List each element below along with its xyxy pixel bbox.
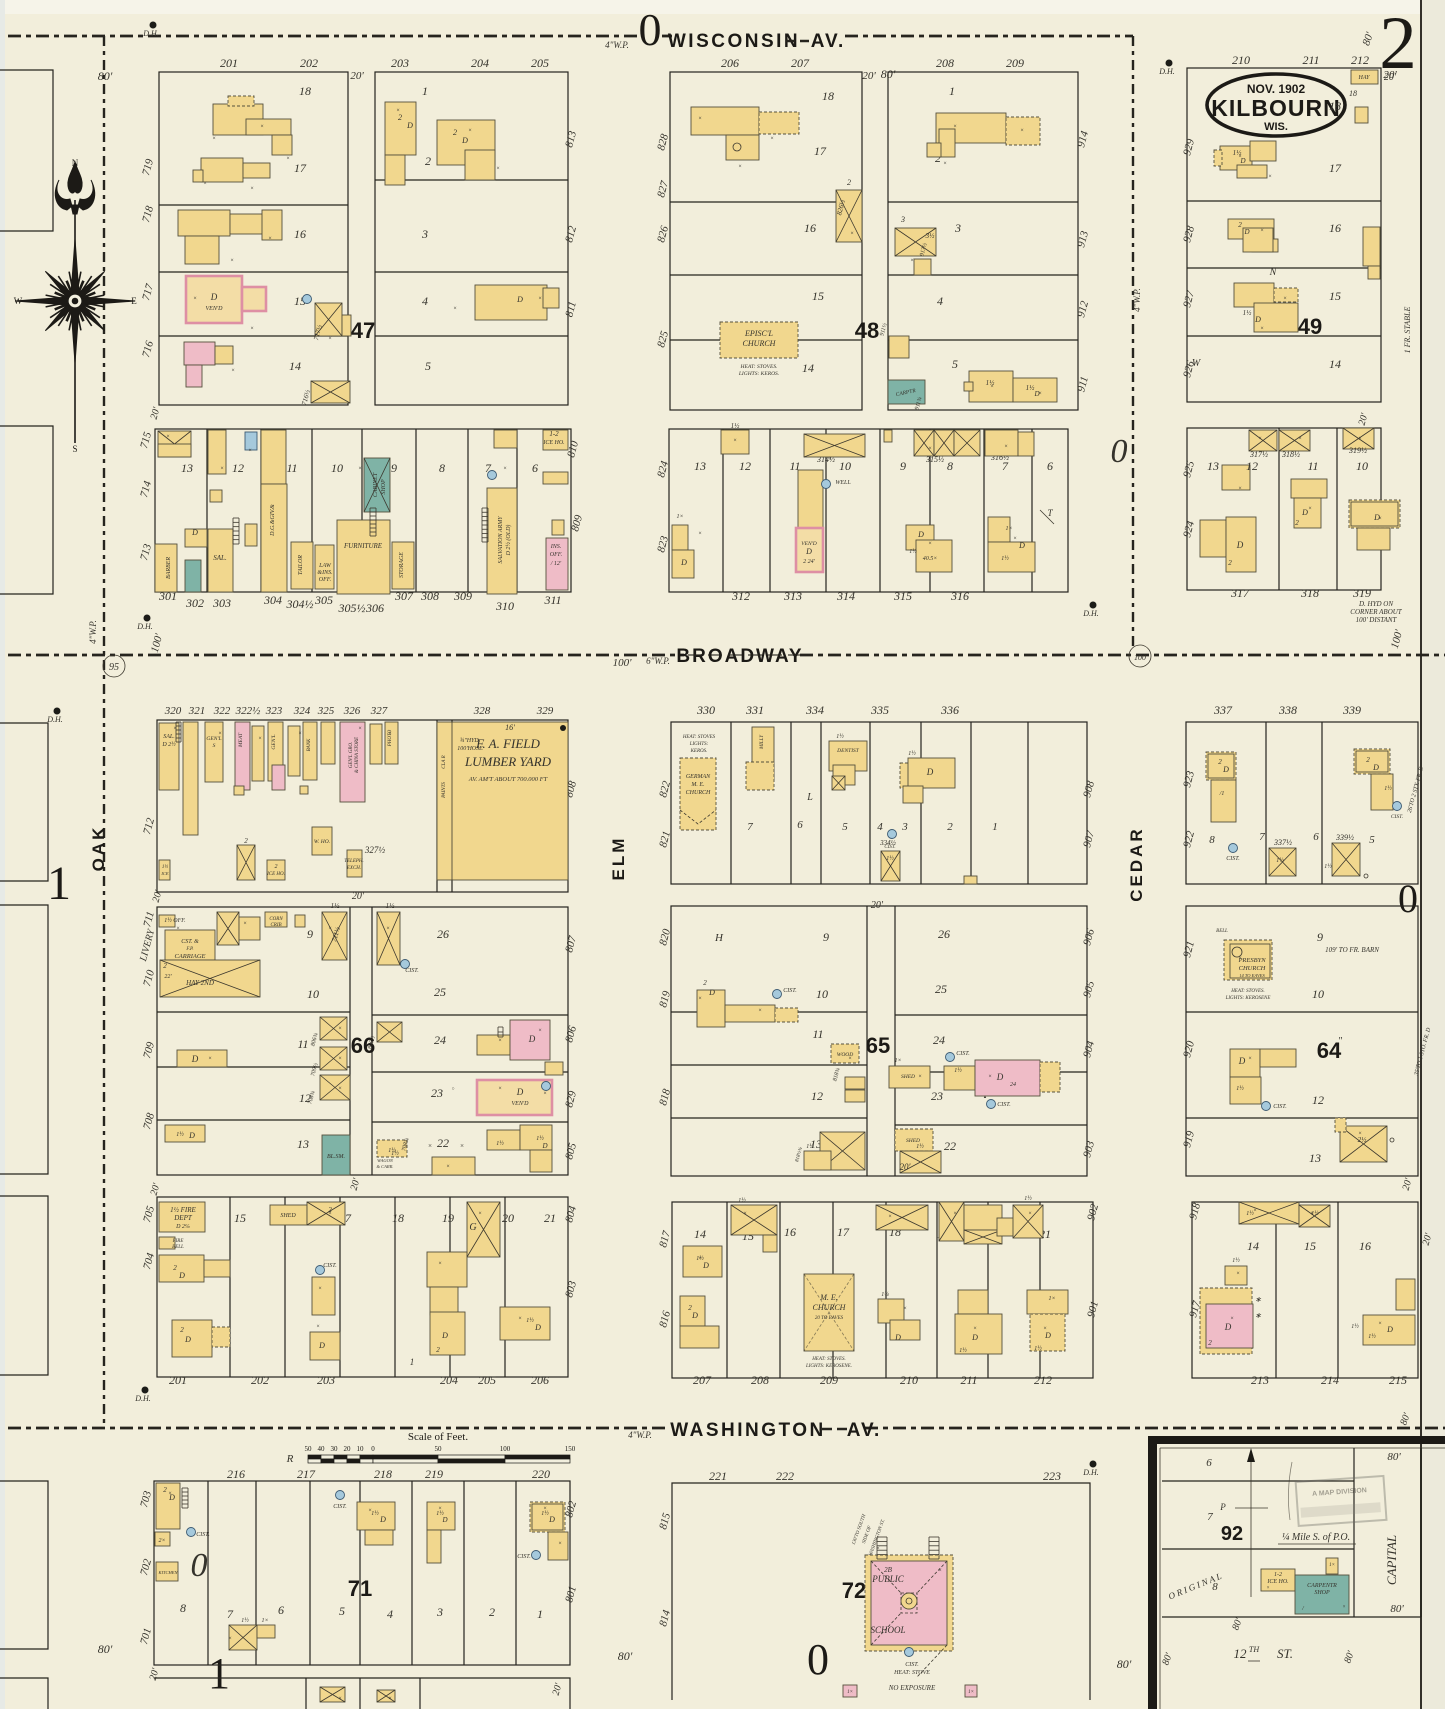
svg-text:D. HYD ON: D. HYD ON	[1358, 600, 1393, 608]
svg-text:23: 23	[431, 1086, 443, 1100]
svg-text:324: 324	[293, 705, 311, 717]
svg-text:CARPENTR: CARPENTR	[1307, 1583, 1337, 1589]
svg-text:×: ×	[212, 136, 216, 142]
svg-text:D: D	[1044, 1331, 1051, 1340]
svg-text:22': 22'	[164, 974, 172, 980]
svg-text:2×: 2×	[158, 1538, 165, 1544]
svg-text:10: 10	[331, 461, 343, 475]
svg-text:5: 5	[425, 359, 431, 373]
svg-text:LIGHTS: KEROS.: LIGHTS: KEROS.	[738, 371, 779, 377]
svg-text:BELL: BELL	[172, 1245, 184, 1250]
svg-text:D: D	[191, 528, 198, 537]
svg-text:18: 18	[392, 1211, 404, 1225]
svg-text:D: D	[184, 1335, 191, 1344]
svg-text:D: D	[441, 1516, 447, 1524]
svg-text:18: 18	[822, 89, 834, 103]
svg-text:17: 17	[814, 144, 827, 158]
svg-text:2: 2	[1218, 758, 1222, 766]
svg-text:DENTIST: DENTIST	[836, 748, 860, 754]
svg-text:16: 16	[294, 227, 306, 241]
svg-text:49: 49	[1298, 314, 1322, 339]
svg-text:D.H.: D.H.	[46, 715, 63, 724]
svg-text:20': 20'	[862, 70, 876, 82]
svg-text:×: ×	[203, 181, 207, 187]
svg-text:D.H.: D.H.	[142, 29, 159, 38]
svg-text:100': 100'	[613, 657, 633, 669]
svg-text:20': 20'	[350, 70, 364, 82]
svg-text:22: 22	[944, 1139, 956, 1153]
svg-text:0: 0	[1111, 433, 1128, 470]
svg-text:×: ×	[388, 731, 392, 737]
svg-text:11: 11	[286, 461, 297, 475]
svg-text:D: D	[534, 1323, 541, 1332]
svg-text:326: 326	[343, 705, 361, 717]
svg-text:14: 14	[289, 359, 301, 373]
svg-text:×: ×	[498, 1086, 502, 1092]
svg-text:1½: 1½	[836, 733, 844, 740]
svg-text:109' TO FR. BARN: 109' TO FR. BARN	[1325, 946, 1379, 954]
svg-text:10: 10	[357, 1445, 365, 1453]
svg-text:323: 323	[265, 705, 283, 717]
svg-text:0: 0	[191, 1547, 208, 1584]
svg-text:CIST.: CIST.	[905, 1662, 918, 1668]
svg-text:26: 26	[437, 927, 449, 941]
svg-text:10: 10	[307, 987, 319, 1001]
svg-text:×: ×	[358, 726, 362, 732]
svg-text:208: 208	[751, 1373, 769, 1387]
svg-text:10: 10	[816, 987, 828, 1001]
svg-text:×: ×	[1378, 1321, 1382, 1327]
svg-text:SAL.: SAL.	[163, 734, 175, 740]
svg-text:2: 2	[173, 1264, 177, 1272]
svg-text:1½: 1½	[241, 1617, 249, 1624]
svg-text:10: 10	[1356, 459, 1368, 473]
svg-text:1×: 1×	[676, 514, 683, 520]
svg-text:×: ×	[738, 164, 742, 170]
svg-text:3: 3	[421, 227, 428, 241]
svg-text:20': 20'	[900, 1162, 912, 1172]
svg-text:1½: 1½	[1024, 1195, 1032, 1202]
svg-text:/1: /1	[1219, 791, 1225, 797]
svg-text:1: 1	[47, 857, 71, 910]
svg-text:D: D	[188, 1131, 195, 1140]
svg-text:317½: 317½	[1249, 450, 1268, 459]
svg-text:9: 9	[1317, 930, 1323, 944]
svg-text:2: 2	[1295, 519, 1299, 527]
svg-text:5: 5	[952, 357, 958, 371]
svg-text:D: D	[1238, 1056, 1246, 1066]
svg-text:×: ×	[538, 1028, 542, 1034]
svg-text:223: 223	[1043, 1469, 1061, 1483]
svg-text:LIGHTS:: LIGHTS:	[689, 742, 709, 747]
svg-text:×: ×	[498, 1038, 502, 1044]
svg-text:×: ×	[1310, 1211, 1314, 1217]
svg-text:1½: 1½	[916, 1143, 924, 1150]
svg-text:GERMAN: GERMAN	[686, 774, 711, 780]
svg-text:9: 9	[307, 927, 313, 941]
svg-text:1½: 1½	[1001, 555, 1009, 562]
svg-text:D: D	[548, 1515, 555, 1524]
svg-text:×: ×	[396, 108, 400, 114]
svg-text:11: 11	[297, 1037, 308, 1051]
svg-text:TAILOR: TAILOR	[298, 555, 304, 575]
svg-text:1½: 1½	[162, 865, 169, 870]
svg-text:204: 204	[471, 56, 489, 70]
svg-text:×: ×	[990, 384, 994, 390]
svg-text:×: ×	[698, 531, 702, 537]
svg-text:D 2½: D 2½	[161, 741, 176, 748]
svg-text:H: H	[714, 932, 724, 944]
svg-text:11: 11	[812, 1027, 823, 1041]
svg-text:4: 4	[387, 1607, 393, 1621]
svg-text:×: ×	[250, 326, 254, 332]
svg-text:1×: 1×	[1048, 1296, 1055, 1302]
svg-text:305½: 305½	[338, 601, 366, 615]
svg-text:40: 40	[318, 1445, 326, 1453]
svg-text:313: 313	[783, 589, 802, 603]
svg-text:×: ×	[953, 124, 957, 130]
svg-text:5: 5	[1369, 834, 1375, 846]
svg-text:71: 71	[348, 1576, 372, 1601]
svg-text:328: 328	[473, 705, 491, 717]
svg-text:1½: 1½	[1351, 1323, 1359, 1330]
svg-text:16: 16	[1359, 1239, 1371, 1253]
svg-text:WASHINGTON: WASHINGTON	[670, 1420, 826, 1441]
svg-text:303: 303	[212, 596, 231, 610]
svg-text:CORN: CORN	[269, 917, 283, 922]
svg-text:214: 214	[1321, 1373, 1339, 1387]
svg-text:3: 3	[901, 821, 908, 833]
svg-text:335: 335	[870, 703, 889, 717]
svg-text:150: 150	[565, 1445, 576, 1453]
svg-text:×: ×	[318, 1286, 322, 1292]
svg-text:1×: 1×	[847, 1690, 853, 1695]
svg-text:×: ×	[173, 726, 177, 732]
svg-text:×: ×	[1236, 1271, 1240, 1277]
svg-text:315: 315	[893, 589, 912, 603]
svg-text:WELL: WELL	[835, 480, 851, 486]
svg-text:W: W	[14, 296, 23, 306]
svg-text:×: ×	[1342, 1605, 1345, 1610]
svg-text:×: ×	[1260, 228, 1264, 234]
svg-text:CIST.: CIST.	[783, 988, 796, 994]
svg-text:1×: 1×	[1005, 526, 1012, 532]
svg-text:1½: 1½	[1384, 785, 1392, 792]
svg-text:LIGHTS: KEROSENE.: LIGHTS: KEROSENE.	[805, 1364, 852, 1369]
svg-text:2: 2	[436, 1346, 440, 1354]
svg-text:D: D	[1222, 765, 1229, 774]
svg-text:FIRE: FIRE	[172, 1239, 184, 1244]
svg-text:×: ×	[220, 466, 224, 472]
svg-text:D.H.: D.H.	[1082, 609, 1099, 618]
svg-text:210: 210	[900, 1373, 918, 1387]
svg-text:×: ×	[928, 541, 932, 547]
svg-text:2: 2	[1366, 756, 1370, 764]
svg-text:13: 13	[297, 1137, 309, 1151]
svg-text:D.H.: D.H.	[134, 1394, 151, 1403]
svg-text:×: ×	[338, 1086, 342, 1092]
svg-text:7: 7	[747, 821, 753, 833]
svg-text:24: 24	[1010, 1081, 1016, 1088]
svg-text:1½: 1½	[954, 1067, 962, 1074]
svg-text:TELEPH.: TELEPH.	[344, 859, 364, 864]
svg-text:×: ×	[316, 1324, 320, 1330]
svg-text:1 FR. STABLE: 1 FR. STABLE	[1403, 307, 1412, 354]
svg-text:100' DISTANT: 100' DISTANT	[1356, 616, 1398, 624]
svg-text:310: 310	[495, 599, 514, 613]
svg-text:1×: 1×	[261, 1618, 268, 1624]
svg-text:1½: 1½	[331, 902, 341, 910]
svg-text:CIST.: CIST.	[1391, 814, 1403, 820]
svg-text:D: D	[1254, 315, 1261, 324]
svg-text:D: D	[1236, 540, 1244, 550]
svg-text:CABINET: CABINET	[373, 472, 379, 497]
svg-text:8: 8	[180, 1601, 186, 1615]
svg-text:D: D	[1018, 541, 1025, 550]
svg-text:10: 10	[839, 459, 851, 473]
svg-text:304: 304	[263, 593, 282, 607]
svg-text:1½: 1½	[908, 750, 916, 757]
svg-text:×: ×	[943, 161, 947, 167]
svg-text:95: 95	[109, 662, 119, 673]
svg-text:CIST.: CIST.	[333, 1504, 346, 1510]
svg-text:325: 325	[317, 705, 335, 717]
svg-text:20': 20'	[1384, 72, 1397, 83]
svg-text:17: 17	[837, 1225, 850, 1239]
svg-text:100'HOSE: 100'HOSE	[457, 746, 483, 752]
svg-text:WAGON: WAGON	[377, 1158, 394, 1163]
svg-text:F. A. FIELD: F. A. FIELD	[475, 736, 540, 751]
svg-text:219: 219	[425, 1467, 443, 1481]
svg-text:×: ×	[850, 231, 854, 237]
svg-text:×: ×	[208, 1056, 212, 1062]
svg-text:×: ×	[928, 446, 932, 452]
svg-text:14: 14	[802, 361, 814, 375]
svg-text:S: S	[72, 444, 77, 454]
svg-text:25: 25	[434, 985, 446, 999]
svg-text:SHED: SHED	[901, 1074, 915, 1080]
svg-text:×: ×	[1283, 296, 1287, 302]
svg-text:×: ×	[438, 1506, 442, 1512]
svg-text:2B: 2B	[884, 1566, 893, 1574]
svg-text:9: 9	[823, 930, 829, 944]
svg-text:17: 17	[294, 161, 307, 175]
svg-text:SHED: SHED	[280, 1213, 296, 1219]
svg-text:18: 18	[299, 84, 311, 98]
svg-text:×: ×	[538, 296, 542, 302]
svg-text:TH: TH	[1249, 1645, 1260, 1654]
svg-text:LAW: LAW	[318, 563, 332, 569]
svg-text:HEAT: STOVES.: HEAT: STOVES.	[1230, 989, 1265, 994]
svg-text:×: ×	[1238, 154, 1242, 160]
svg-text:L: L	[806, 792, 813, 803]
svg-text:ICE HO.: ICE HO.	[266, 872, 285, 877]
svg-text:1½: 1½	[1276, 857, 1284, 864]
svg-text:305: 305	[314, 593, 333, 607]
svg-text:EPISC'L: EPISC'L	[744, 329, 773, 338]
svg-text:14: 14	[1329, 357, 1341, 371]
svg-text:×: ×	[938, 1568, 942, 1574]
svg-text:322: 322	[213, 705, 231, 717]
svg-text:∗: ∗	[1255, 1311, 1262, 1320]
svg-text:1½: 1½	[1236, 1085, 1244, 1092]
svg-text:KEROS.: KEROS.	[690, 749, 708, 754]
svg-text:22: 22	[437, 1136, 449, 1150]
svg-text:×: ×	[1038, 391, 1042, 397]
svg-text:D: D	[1372, 763, 1379, 772]
svg-text:×: ×	[1358, 436, 1362, 442]
svg-text:334: 334	[805, 703, 824, 717]
svg-text:319½: 319½	[1348, 446, 1367, 455]
svg-text:PUBLIC: PUBLIC	[871, 1574, 904, 1584]
svg-text:×: ×	[338, 1696, 342, 1702]
svg-text:4: 4	[937, 294, 943, 308]
svg-text:6: 6	[1047, 459, 1053, 473]
svg-text:CIST.: CIST.	[405, 968, 418, 974]
svg-text:R: R	[286, 1453, 294, 1465]
svg-text:×: ×	[1298, 436, 1302, 442]
svg-text:334½: 334½	[879, 839, 897, 847]
svg-text:213: 213	[1251, 1373, 1269, 1387]
svg-text:11: 11	[1307, 459, 1318, 473]
svg-text:1½: 1½	[1034, 1345, 1042, 1352]
svg-text:0: 0	[371, 1445, 375, 1453]
svg-text:14: 14	[1247, 1239, 1259, 1253]
svg-text:GEN'L GRO.: GEN'L GRO.	[349, 742, 354, 769]
svg-text:D: D	[805, 547, 812, 556]
svg-text:D: D	[680, 558, 687, 567]
svg-text:1½: 1½	[496, 1140, 504, 1147]
svg-text:4"W.P.: 4"W.P.	[88, 620, 98, 644]
svg-text:×: ×	[243, 921, 247, 927]
svg-text:6: 6	[532, 461, 538, 475]
svg-text:×: ×	[298, 731, 302, 737]
svg-text:12: 12	[739, 459, 751, 473]
svg-text:1½: 1½	[738, 1197, 746, 1204]
svg-text:2: 2	[1208, 1339, 1212, 1347]
svg-text:×: ×	[428, 1142, 433, 1150]
svg-text:CIST.: CIST.	[1226, 856, 1239, 862]
svg-text:∗: ∗	[1255, 1295, 1262, 1304]
svg-text:CHURCH: CHURCH	[1239, 965, 1266, 972]
svg-text:12: 12	[232, 461, 244, 475]
svg-text:302: 302	[185, 596, 204, 610]
svg-text:209: 209	[820, 1373, 838, 1387]
svg-text:HAY 2ND: HAY 2ND	[185, 979, 214, 987]
svg-text:13: 13	[1207, 459, 1219, 473]
svg-text:D: D	[917, 530, 924, 539]
svg-text:×: ×	[166, 434, 170, 440]
svg-text:6: 6	[278, 1603, 284, 1617]
svg-text:1: 1	[992, 821, 998, 833]
svg-text:338: 338	[1278, 703, 1297, 717]
svg-text:1½: 1½	[959, 1347, 967, 1354]
svg-text:×: ×	[733, 438, 737, 444]
svg-text:4: 4	[422, 294, 428, 308]
svg-text:D: D	[1243, 228, 1249, 236]
svg-text:DEPT: DEPT	[173, 1214, 193, 1222]
svg-text:×: ×	[368, 1508, 372, 1514]
svg-text:×: ×	[1013, 536, 1017, 542]
svg-text:D: D	[708, 988, 715, 997]
svg-text:D: D	[379, 1515, 386, 1524]
svg-text:×: ×	[1253, 1208, 1257, 1214]
svg-text:13: 13	[1309, 1151, 1321, 1165]
svg-text:STORAGE: STORAGE	[399, 552, 405, 578]
svg-text:×: ×	[1248, 1056, 1252, 1062]
svg-text:2: 2	[847, 178, 851, 187]
svg-text:CST. &: CST. &	[181, 939, 199, 945]
svg-text:CIST.: CIST.	[997, 1102, 1010, 1108]
svg-text:×: ×	[228, 1636, 232, 1642]
svg-text:×: ×	[231, 368, 235, 374]
svg-text:329: 329	[536, 705, 554, 717]
svg-text:339: 339	[1342, 703, 1361, 717]
svg-text:×: ×	[446, 1164, 450, 1170]
svg-text:CIST.: CIST.	[1273, 1104, 1286, 1110]
svg-text:80': 80'	[618, 1649, 633, 1663]
svg-text:1: 1	[422, 84, 428, 98]
svg-text:306: 306	[365, 601, 384, 615]
svg-text:2: 2	[489, 1605, 495, 1619]
svg-text:50: 50	[435, 1445, 443, 1453]
svg-text:SAL.: SAL.	[213, 554, 227, 562]
svg-text:216: 216	[227, 1467, 245, 1481]
svg-text:13: 13	[181, 461, 193, 475]
svg-text:100: 100	[500, 1445, 511, 1453]
svg-text:D: D	[318, 1341, 325, 1350]
svg-text:×: ×	[1230, 1316, 1234, 1322]
svg-text:1½: 1½	[886, 855, 894, 862]
svg-text:SHOP: SHOP	[381, 479, 387, 495]
svg-text:2: 2	[1228, 559, 1232, 567]
svg-text:206: 206	[531, 1373, 549, 1387]
svg-text:312: 312	[731, 589, 750, 603]
svg-text:×: ×	[218, 731, 222, 737]
svg-text:2½: 2½	[1358, 1136, 1368, 1144]
svg-text:▲: ▲	[983, 1094, 987, 1099]
svg-text:316: 316	[950, 589, 969, 603]
svg-text:2: 2	[163, 962, 167, 970]
svg-text:15: 15	[812, 289, 824, 303]
svg-text:×: ×	[910, 258, 914, 264]
svg-text:BROADWAY: BROADWAY	[676, 646, 803, 667]
svg-text:222: 222	[776, 1469, 794, 1483]
svg-text:320: 320	[164, 705, 182, 717]
svg-text:1½ FIRE: 1½ FIRE	[170, 1206, 196, 1214]
svg-text:208: 208	[936, 56, 954, 70]
svg-text:322½: 322½	[235, 705, 261, 717]
svg-text:21: 21	[544, 1211, 556, 1225]
svg-text:25: 25	[935, 982, 947, 996]
svg-text:F.P.: F.P.	[185, 947, 193, 952]
svg-text:CAPITAL: CAPITAL	[1384, 1535, 1399, 1585]
svg-text:20: 20	[502, 1211, 514, 1225]
svg-text:×: ×	[770, 136, 774, 142]
svg-text:×: ×	[988, 1074, 992, 1080]
svg-text:327½: 327½	[364, 845, 386, 855]
svg-text:212: 212	[1034, 1373, 1052, 1387]
svg-text:4: 4	[877, 821, 883, 833]
svg-text:CHURCH: CHURCH	[686, 790, 711, 796]
svg-text:12: 12	[1246, 459, 1258, 473]
svg-text:BL.SM.: BL.SM.	[327, 1154, 345, 1160]
svg-text:8: 8	[439, 461, 445, 475]
svg-text:×: ×	[758, 1008, 762, 1014]
svg-text:318: 318	[1300, 586, 1319, 600]
svg-text:D: D	[528, 1034, 536, 1044]
svg-text:BELL: BELL	[1216, 929, 1228, 934]
